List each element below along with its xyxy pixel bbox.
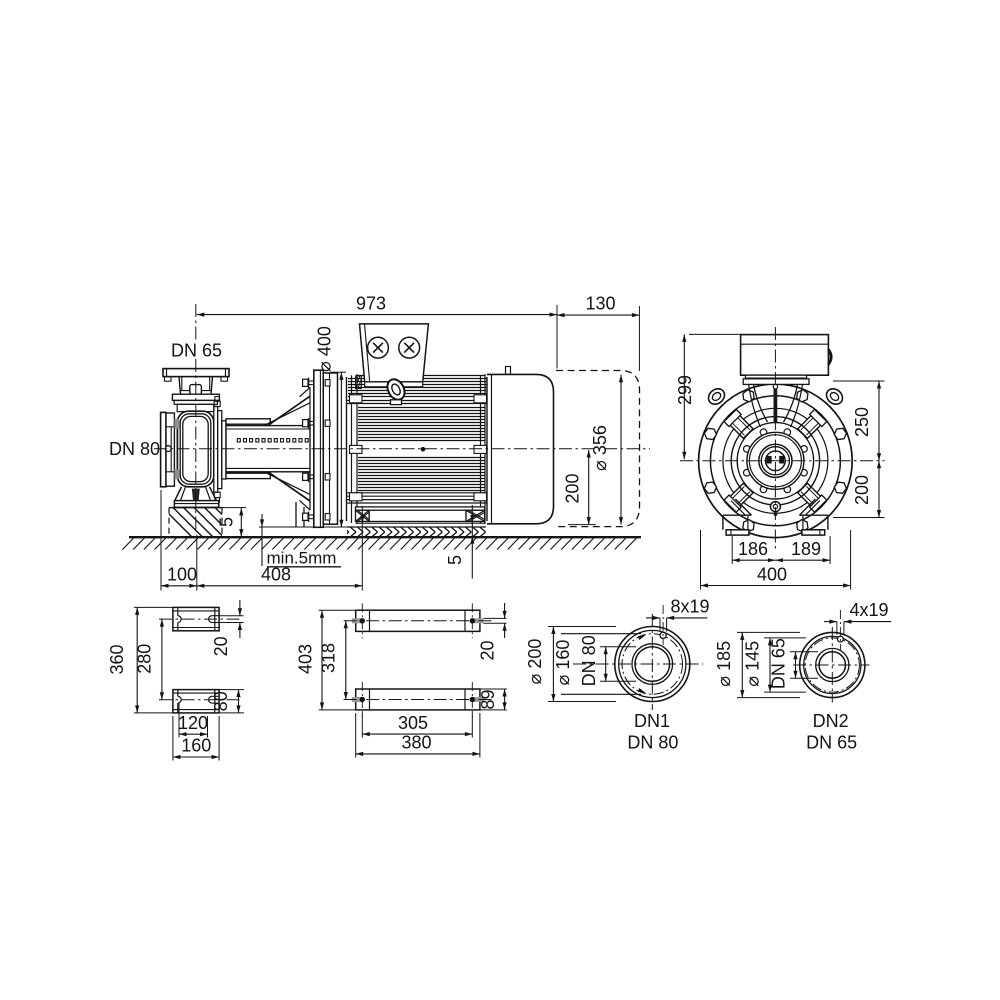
- svg-text:318: 318: [319, 643, 339, 673]
- svg-text:200: 200: [563, 473, 583, 503]
- svg-text:5: 5: [445, 555, 465, 565]
- svg-text:5: 5: [217, 517, 237, 527]
- svg-text:DN2: DN2: [813, 711, 849, 731]
- svg-text:130: 130: [585, 294, 615, 314]
- svg-text:973: 973: [356, 294, 386, 314]
- svg-text:20: 20: [211, 636, 231, 656]
- svg-text:DN1: DN1: [634, 711, 670, 731]
- svg-text:360: 360: [107, 644, 127, 674]
- svg-text:⌀ 160: ⌀ 160: [553, 640, 573, 686]
- svg-text:DN 80: DN 80: [579, 635, 599, 686]
- svg-text:⌀ 145: ⌀ 145: [743, 641, 763, 687]
- svg-text:160: 160: [181, 736, 211, 756]
- svg-text:280: 280: [134, 644, 154, 674]
- svg-text:⌀ 356: ⌀ 356: [590, 425, 610, 471]
- svg-text:186: 186: [738, 539, 768, 559]
- svg-text:DN 80: DN 80: [627, 732, 678, 752]
- svg-text:80: 80: [211, 691, 231, 711]
- svg-text:4x19: 4x19: [849, 600, 888, 620]
- svg-text:189: 189: [791, 539, 821, 559]
- svg-text:400: 400: [757, 564, 787, 584]
- svg-text:⌀ 400: ⌀ 400: [315, 326, 335, 372]
- svg-text:120: 120: [178, 713, 208, 733]
- svg-text:DN 80: DN 80: [109, 439, 160, 459]
- svg-text:DN 65: DN 65: [769, 638, 789, 689]
- svg-text:89: 89: [478, 689, 498, 709]
- svg-text:403: 403: [295, 644, 315, 674]
- svg-text:305: 305: [398, 713, 428, 733]
- svg-text:100: 100: [167, 565, 197, 585]
- svg-text:250: 250: [852, 407, 872, 437]
- svg-text:380: 380: [401, 733, 431, 753]
- svg-text:20: 20: [478, 640, 498, 660]
- svg-text:200: 200: [852, 475, 872, 505]
- svg-text:⌀ 185: ⌀ 185: [714, 641, 734, 687]
- svg-text:DN 65: DN 65: [806, 732, 857, 752]
- svg-text:⌀ 200: ⌀ 200: [525, 639, 545, 685]
- svg-text:8x19: 8x19: [670, 597, 709, 617]
- svg-text:DN 65: DN 65: [171, 340, 222, 360]
- svg-text:299: 299: [675, 375, 695, 405]
- svg-text:min.5mm: min.5mm: [267, 549, 337, 568]
